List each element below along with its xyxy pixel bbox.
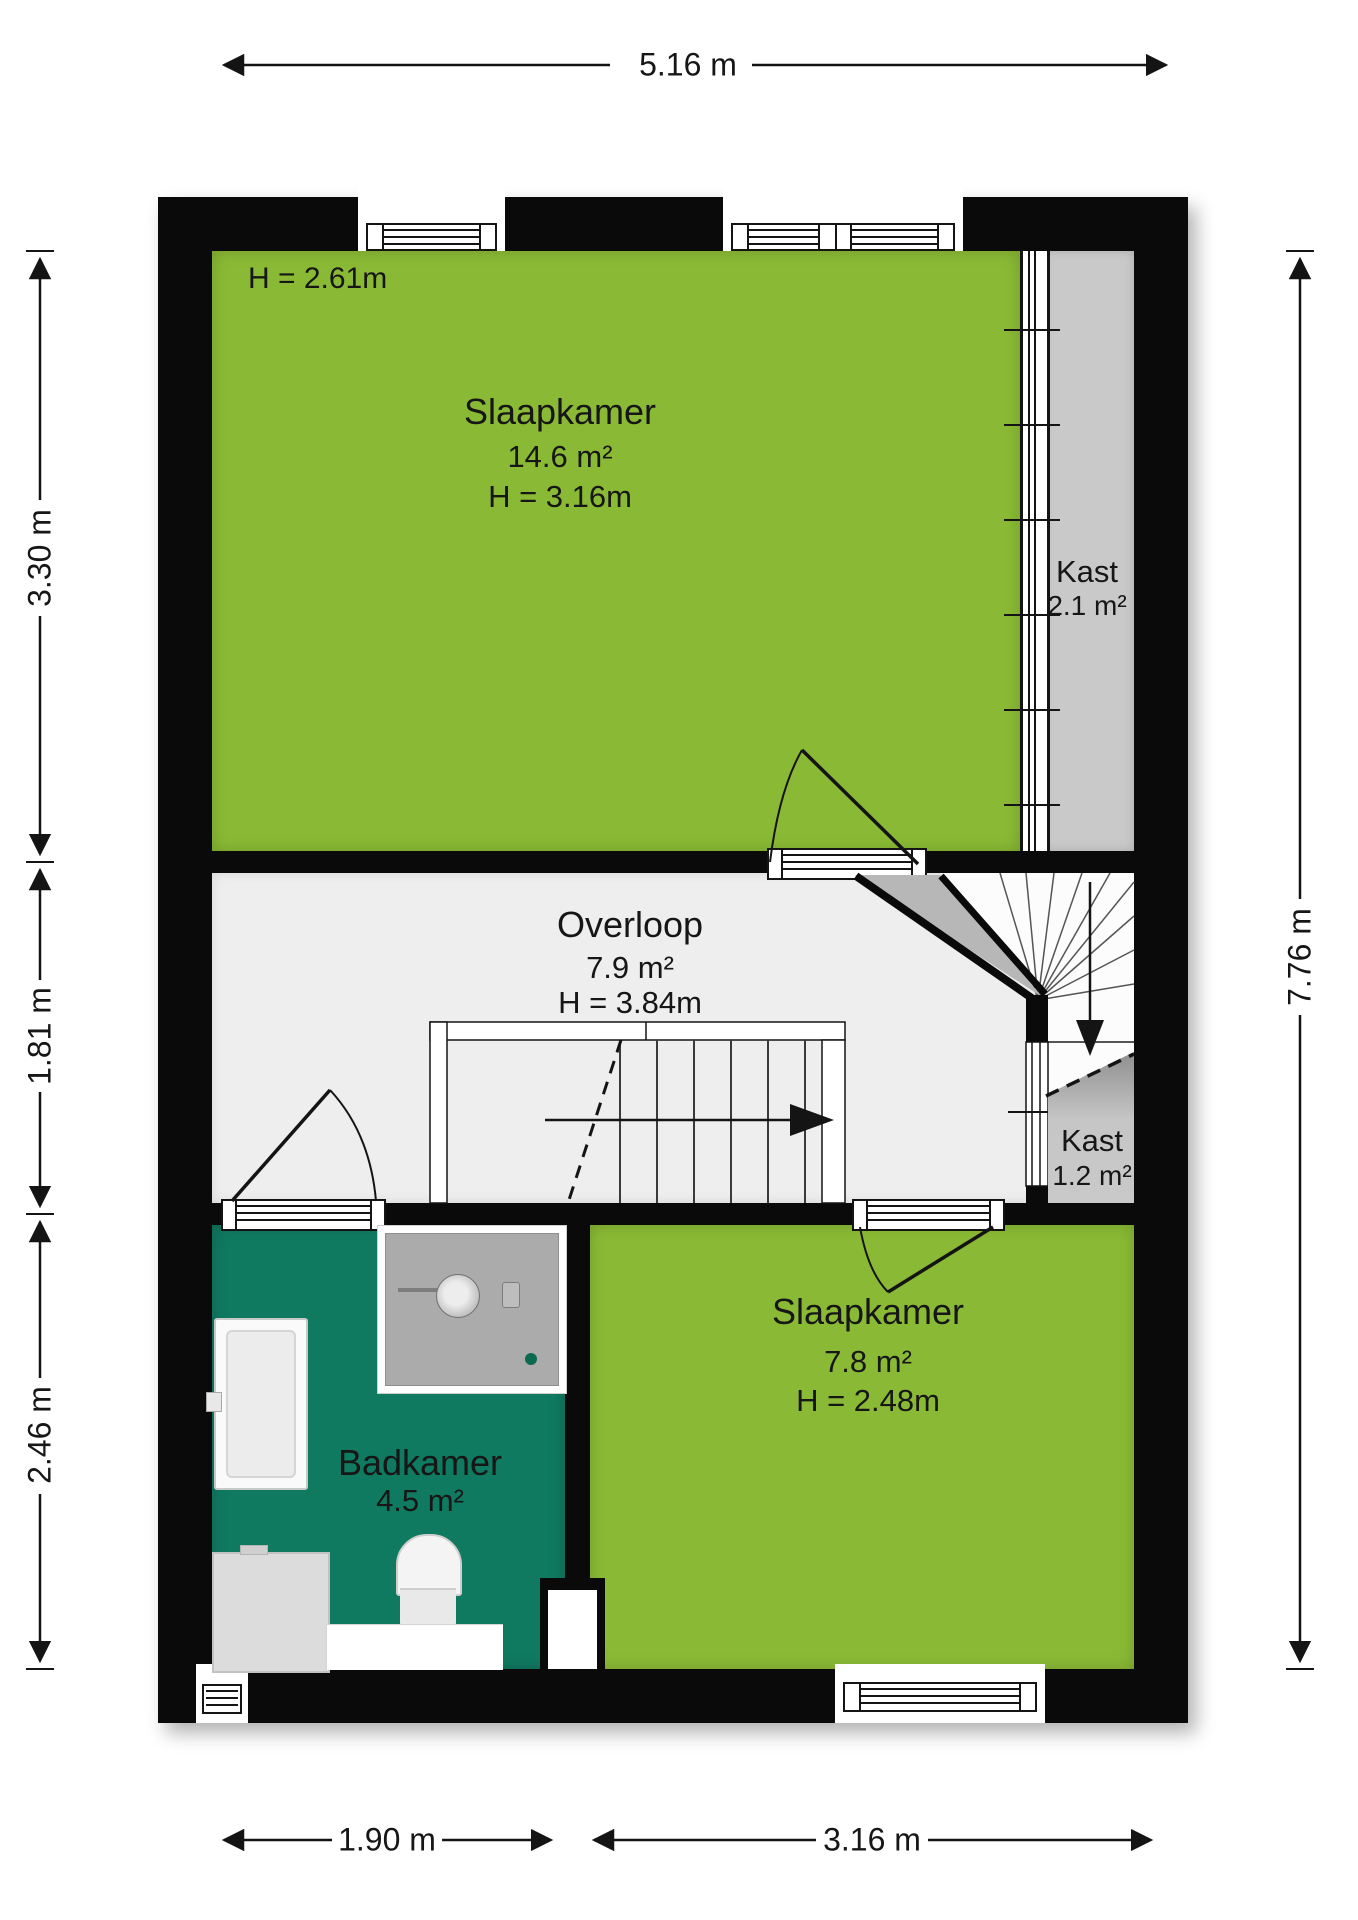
floor-plan: H = 2.61m Slaapkamer 14.6 m² H = 3.16m K… (0, 0, 1358, 1920)
label-kast1-name: Kast (1056, 554, 1118, 590)
door-leaf-slaapkamer2 (888, 1227, 993, 1292)
closet2-door (1026, 1042, 1048, 1186)
dimension-left-2: 1.81 m (22, 981, 59, 1091)
label-badkamer-name: Badkamer (338, 1442, 502, 1484)
label-slaapkamer1-name: Slaapkamer (464, 391, 656, 433)
stairs-boundary-dashed-line (568, 1040, 621, 1203)
label-slaapkamer2-name: Slaapkamer (772, 1291, 964, 1333)
door-swings (232, 750, 993, 1292)
label-slaapkamer2-area: 7.8 m² (824, 1344, 912, 1380)
plan-linework (0, 0, 1358, 1920)
closet1-door-ticks (1004, 330, 1060, 805)
dimension-right: 7.76 m (1282, 902, 1319, 1012)
ceiling-height-note: H = 2.61m (248, 262, 387, 296)
dimension-left-3: 2.46 m (22, 1380, 59, 1490)
label-kast1-area: 2.1 m² (1047, 590, 1126, 622)
label-slaapkamer1-area: 14.6 m² (507, 439, 612, 475)
label-slaapkamer2-height: H = 2.48m (796, 1383, 940, 1419)
door-leaf-badkamer (232, 1090, 330, 1201)
label-kast2-area: 1.2 m² (1052, 1160, 1131, 1192)
label-kast2-name: Kast (1061, 1123, 1123, 1159)
dimension-top: 5.16 m (633, 47, 743, 84)
label-slaapkamer1-height: H = 3.16m (488, 479, 632, 515)
label-overloop-area: 7.9 m² (586, 950, 674, 986)
stairs-main (430, 1022, 845, 1203)
dimension-bottom-1: 1.90 m (332, 1822, 442, 1859)
door-leaf-slaapkamer1 (802, 750, 918, 864)
label-badkamer-area: 4.5 m² (376, 1483, 464, 1519)
label-overloop-height: H = 3.84m (558, 985, 702, 1021)
dimension-bottom-2: 3.16 m (817, 1822, 927, 1859)
dimension-left-1: 3.30 m (22, 503, 59, 613)
label-overloop-name: Overloop (557, 904, 703, 946)
